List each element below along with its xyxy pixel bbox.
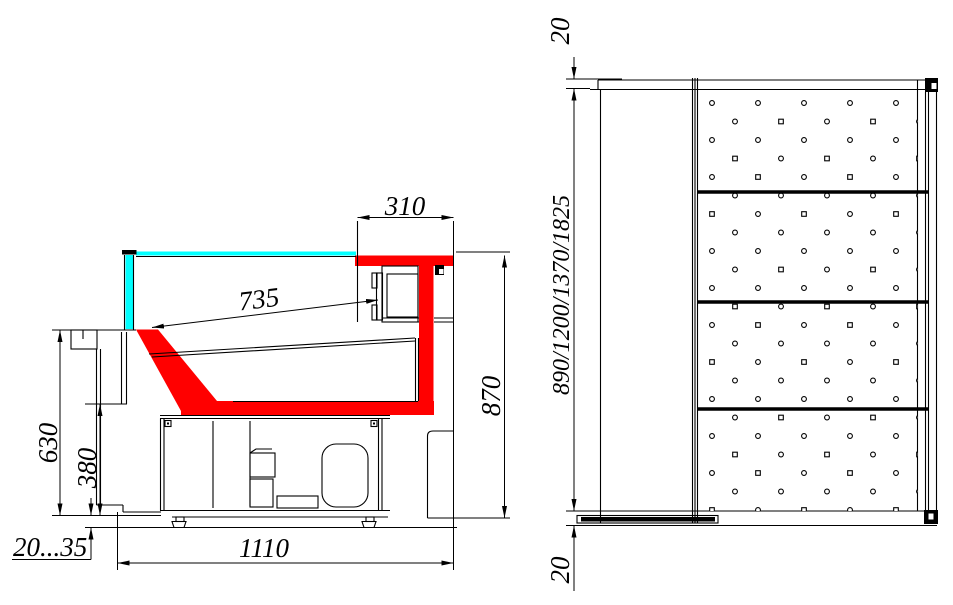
perforated-shelf-panel bbox=[698, 90, 929, 511]
compressor bbox=[322, 444, 368, 507]
dim-end-rail-top: 20 bbox=[545, 17, 575, 45]
dim-leg-adjust-range: 20...35 bbox=[13, 532, 87, 562]
condenser-box bbox=[250, 453, 275, 477]
dim-display-depth: 735 bbox=[237, 282, 281, 317]
dimensions-side-view: 310 735 630 380 20...35 870 1110 bbox=[12, 191, 510, 570]
dim-canopy-depth: 310 bbox=[384, 191, 426, 221]
adjustable-foot bbox=[362, 517, 376, 528]
machine-compartment bbox=[85, 416, 457, 528]
drawing-canvas: 310 735 630 380 20...35 870 1110 bbox=[0, 0, 953, 605]
dim-front-height: 630 bbox=[33, 422, 63, 463]
bumper-rail bbox=[71, 330, 97, 349]
dim-case-lengths: 890/1200/1370/1825 bbox=[549, 195, 575, 395]
adjustable-foot bbox=[172, 517, 186, 528]
dimensions-plan-view: 20 890/1200/1370/1825 20 bbox=[545, 17, 622, 591]
red-body-profile bbox=[136, 256, 453, 416]
dim-overall-depth: 1110 bbox=[239, 533, 289, 563]
top-plan-view: 20 890/1200/1370/1825 20 bbox=[545, 17, 938, 591]
rear-unit bbox=[372, 265, 453, 322]
base-plate bbox=[160, 511, 390, 518]
dim-overall-height: 870 bbox=[476, 375, 506, 416]
side-section-view: 310 735 630 380 20...35 870 1110 bbox=[12, 191, 510, 570]
dim-base-height: 380 bbox=[72, 447, 102, 489]
end-rail-bar bbox=[581, 517, 715, 522]
glass-top-cap bbox=[122, 250, 137, 255]
refrigerated-case-technical-drawing: 310 735 630 380 20...35 870 1110 bbox=[0, 0, 953, 605]
dim-end-rail-bottom: 20 bbox=[545, 556, 575, 584]
